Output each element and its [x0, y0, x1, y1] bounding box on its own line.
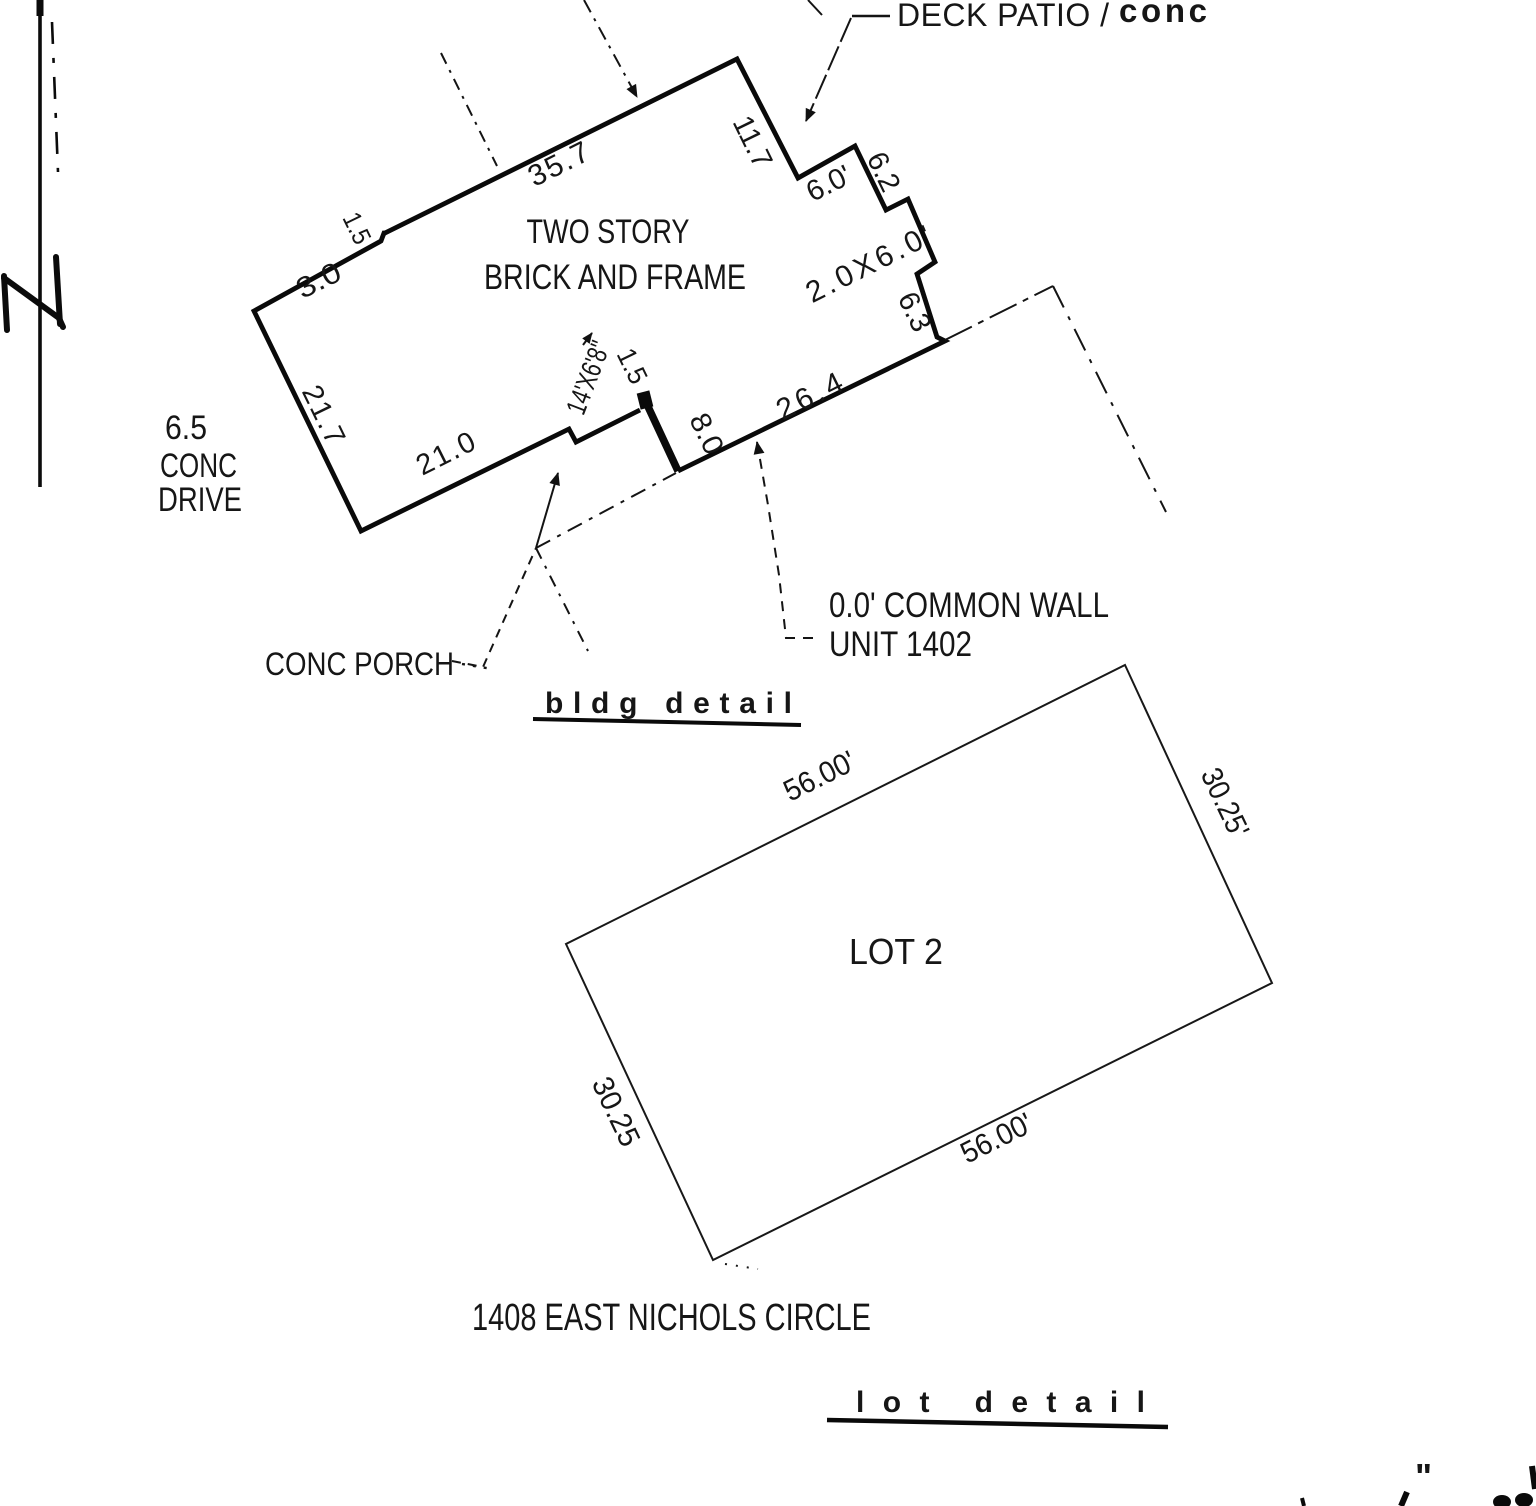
svg-text:lot detail: lot detail — [856, 1386, 1145, 1419]
svg-text:14'X6'8": 14'X6'8" — [560, 337, 616, 419]
svg-text:6.5: 6.5 — [165, 409, 207, 447]
svg-text:1.5: 1.5 — [611, 343, 654, 389]
svg-text:6.2: 6.2 — [860, 147, 906, 197]
svg-text:": " — [1415, 1456, 1432, 1497]
svg-text:1.5: 1.5 — [337, 207, 378, 249]
svg-text:UNIT 1402: UNIT 1402 — [829, 625, 972, 664]
svg-text:56.00': 56.00' — [955, 1107, 1038, 1170]
svg-text:TWO STORY: TWO STORY — [527, 213, 690, 251]
svg-text:1408 EAST NICHOLS CIRCLE: 1408 EAST NICHOLS CIRCLE — [472, 1297, 871, 1339]
svg-text:21.0: 21.0 — [411, 426, 481, 482]
svg-text:conc: conc — [1119, 0, 1207, 29]
svg-text:CONC: CONC — [160, 447, 237, 485]
svg-text:LOT 2: LOT 2 — [849, 931, 943, 972]
svg-text:bldg detail: bldg detail — [545, 687, 792, 720]
svg-text:30.25': 30.25' — [1194, 763, 1255, 843]
svg-text:8.0: 8.0 — [683, 408, 730, 460]
svg-text:26.4: 26.4 — [771, 366, 848, 427]
svg-text:30.25: 30.25 — [585, 1072, 646, 1152]
svg-text:56.00': 56.00' — [778, 745, 861, 808]
svg-text:DRIVE: DRIVE — [158, 481, 242, 519]
svg-text:35.7: 35.7 — [523, 135, 595, 193]
svg-text:DECK PATIO /: DECK PATIO / — [897, 0, 1109, 33]
svg-text:6.0': 6.0' — [801, 159, 856, 208]
svg-text:BRICK AND FRAME: BRICK AND FRAME — [484, 258, 746, 297]
svg-text:6.3: 6.3 — [891, 287, 937, 337]
svg-text:0.0' COMMON WALL: 0.0' COMMON WALL — [829, 586, 1109, 625]
svg-text:CONC PORCH: CONC PORCH — [265, 646, 454, 682]
